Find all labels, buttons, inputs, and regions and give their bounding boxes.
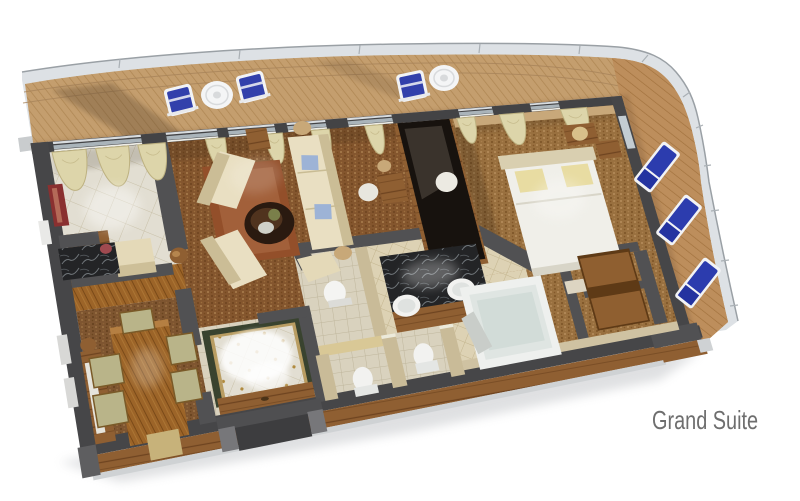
svg-text:Grand Suite: Grand Suite (652, 406, 758, 435)
